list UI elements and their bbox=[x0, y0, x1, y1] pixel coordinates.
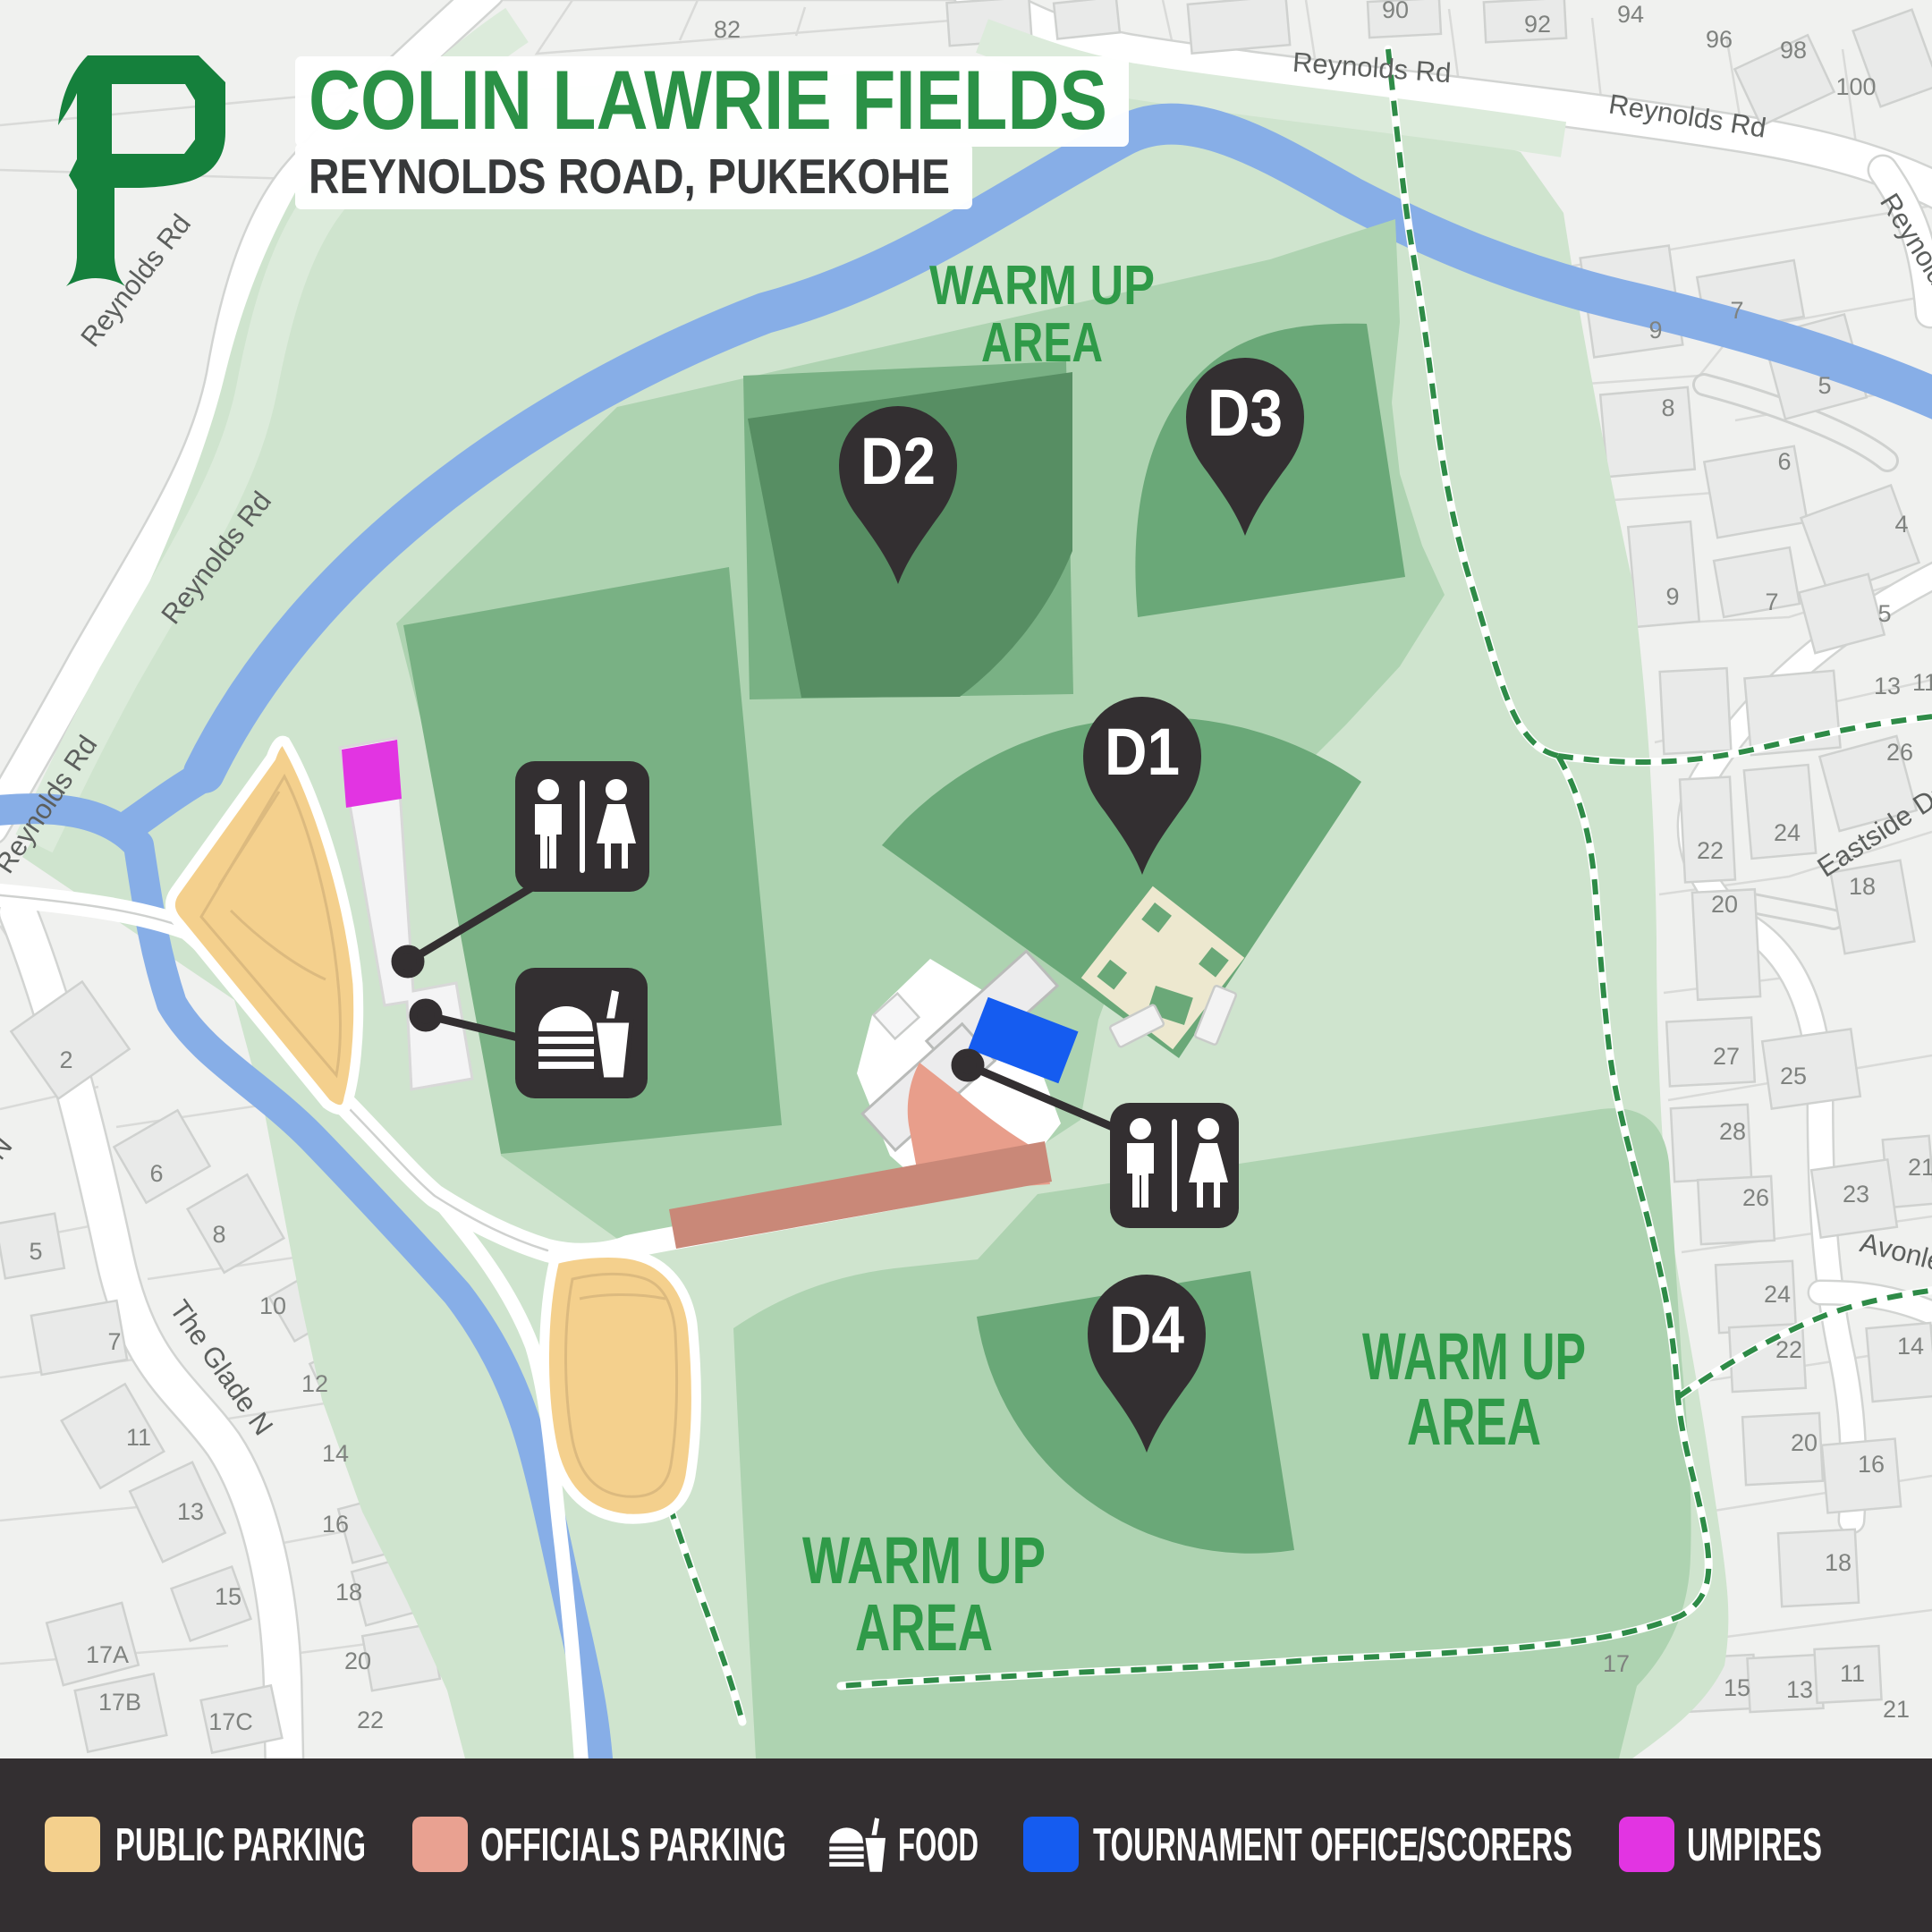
svg-text:27: 27 bbox=[1713, 1043, 1740, 1070]
svg-text:17A: 17A bbox=[86, 1641, 129, 1668]
svg-text:21: 21 bbox=[1908, 1154, 1932, 1181]
svg-text:6: 6 bbox=[1777, 448, 1791, 475]
svg-text:24: 24 bbox=[1774, 819, 1801, 846]
svg-text:REYNOLDS ROAD, PUKEKOHE: REYNOLDS ROAD, PUKEKOHE bbox=[309, 148, 950, 204]
svg-text:16: 16 bbox=[1858, 1451, 1885, 1478]
svg-text:7: 7 bbox=[107, 1328, 121, 1355]
svg-text:26: 26 bbox=[1886, 739, 1913, 766]
svg-text:OFFICIALS PARKING: OFFICIALS PARKING bbox=[480, 1819, 786, 1871]
svg-text:22: 22 bbox=[1775, 1336, 1802, 1363]
svg-text:100: 100 bbox=[1835, 73, 1876, 100]
svg-text:10: 10 bbox=[259, 1292, 286, 1319]
svg-text:21: 21 bbox=[1883, 1696, 1910, 1723]
svg-text:14: 14 bbox=[322, 1440, 349, 1467]
svg-text:8: 8 bbox=[212, 1221, 225, 1248]
svg-text:4: 4 bbox=[1894, 511, 1908, 538]
svg-text:AREA: AREA bbox=[855, 1590, 993, 1665]
svg-text:11: 11 bbox=[1912, 669, 1932, 696]
svg-text:9: 9 bbox=[1665, 583, 1679, 610]
svg-text:8: 8 bbox=[1661, 394, 1674, 421]
svg-text:AREA: AREA bbox=[981, 312, 1103, 374]
svg-text:D4: D4 bbox=[1109, 1292, 1184, 1367]
svg-text:AREA: AREA bbox=[1407, 1385, 1541, 1459]
svg-text:15: 15 bbox=[215, 1583, 241, 1610]
svg-text:24: 24 bbox=[1764, 1281, 1791, 1308]
svg-text:11: 11 bbox=[126, 1424, 151, 1451]
svg-text:5: 5 bbox=[1877, 600, 1891, 627]
svg-text:6: 6 bbox=[149, 1160, 163, 1187]
svg-text:22: 22 bbox=[1697, 837, 1724, 864]
svg-text:WARM UP: WARM UP bbox=[802, 1523, 1046, 1597]
svg-text:92: 92 bbox=[1524, 11, 1551, 38]
svg-text:94: 94 bbox=[1617, 1, 1644, 28]
svg-text:82: 82 bbox=[714, 16, 741, 43]
svg-text:13: 13 bbox=[1874, 673, 1901, 699]
svg-text:25: 25 bbox=[1780, 1063, 1807, 1089]
svg-text:COLIN LAWRIE FIELDS: COLIN LAWRIE FIELDS bbox=[309, 53, 1107, 147]
svg-text:5: 5 bbox=[29, 1238, 42, 1265]
svg-text:TOURNAMENT OFFICE/SCORERS: TOURNAMENT OFFICE/SCORERS bbox=[1093, 1819, 1572, 1871]
svg-text:2: 2 bbox=[59, 1046, 72, 1073]
svg-text:13: 13 bbox=[177, 1498, 204, 1525]
svg-text:PUBLIC PARKING: PUBLIC PARKING bbox=[115, 1819, 366, 1871]
svg-text:26: 26 bbox=[1742, 1184, 1769, 1211]
svg-text:13: 13 bbox=[1786, 1676, 1813, 1703]
svg-text:14: 14 bbox=[1897, 1333, 1924, 1360]
svg-text:20: 20 bbox=[344, 1648, 371, 1674]
svg-text:UMPIRES: UMPIRES bbox=[1687, 1819, 1822, 1871]
svg-text:FOOD: FOOD bbox=[898, 1819, 979, 1871]
svg-text:12: 12 bbox=[301, 1370, 328, 1397]
svg-text:7: 7 bbox=[1765, 589, 1778, 615]
svg-text:98: 98 bbox=[1780, 37, 1807, 64]
svg-text:D1: D1 bbox=[1105, 715, 1180, 789]
svg-text:WARM UP: WARM UP bbox=[1362, 1319, 1586, 1394]
svg-text:D2: D2 bbox=[860, 424, 936, 498]
svg-text:23: 23 bbox=[1843, 1181, 1869, 1207]
svg-text:16: 16 bbox=[322, 1511, 349, 1538]
svg-text:96: 96 bbox=[1706, 26, 1733, 53]
svg-text:7: 7 bbox=[1730, 297, 1743, 324]
svg-text:18: 18 bbox=[1825, 1549, 1851, 1576]
svg-text:11: 11 bbox=[1840, 1660, 1865, 1687]
svg-text:5: 5 bbox=[1818, 372, 1831, 399]
svg-text:9: 9 bbox=[1648, 317, 1662, 343]
svg-text:17C: 17C bbox=[208, 1708, 253, 1735]
svg-text:28: 28 bbox=[1719, 1118, 1746, 1145]
svg-text:90: 90 bbox=[1382, 0, 1409, 23]
svg-text:D3: D3 bbox=[1207, 376, 1283, 450]
svg-text:15: 15 bbox=[1724, 1674, 1750, 1701]
svg-text:20: 20 bbox=[1711, 891, 1738, 918]
svg-text:17: 17 bbox=[1603, 1650, 1630, 1677]
svg-text:22: 22 bbox=[357, 1707, 384, 1733]
svg-text:17B: 17B bbox=[98, 1689, 141, 1716]
svg-text:18: 18 bbox=[1849, 873, 1876, 900]
svg-text:18: 18 bbox=[335, 1579, 362, 1606]
svg-text:20: 20 bbox=[1791, 1429, 1818, 1456]
svg-text:WARM UP: WARM UP bbox=[929, 255, 1155, 317]
